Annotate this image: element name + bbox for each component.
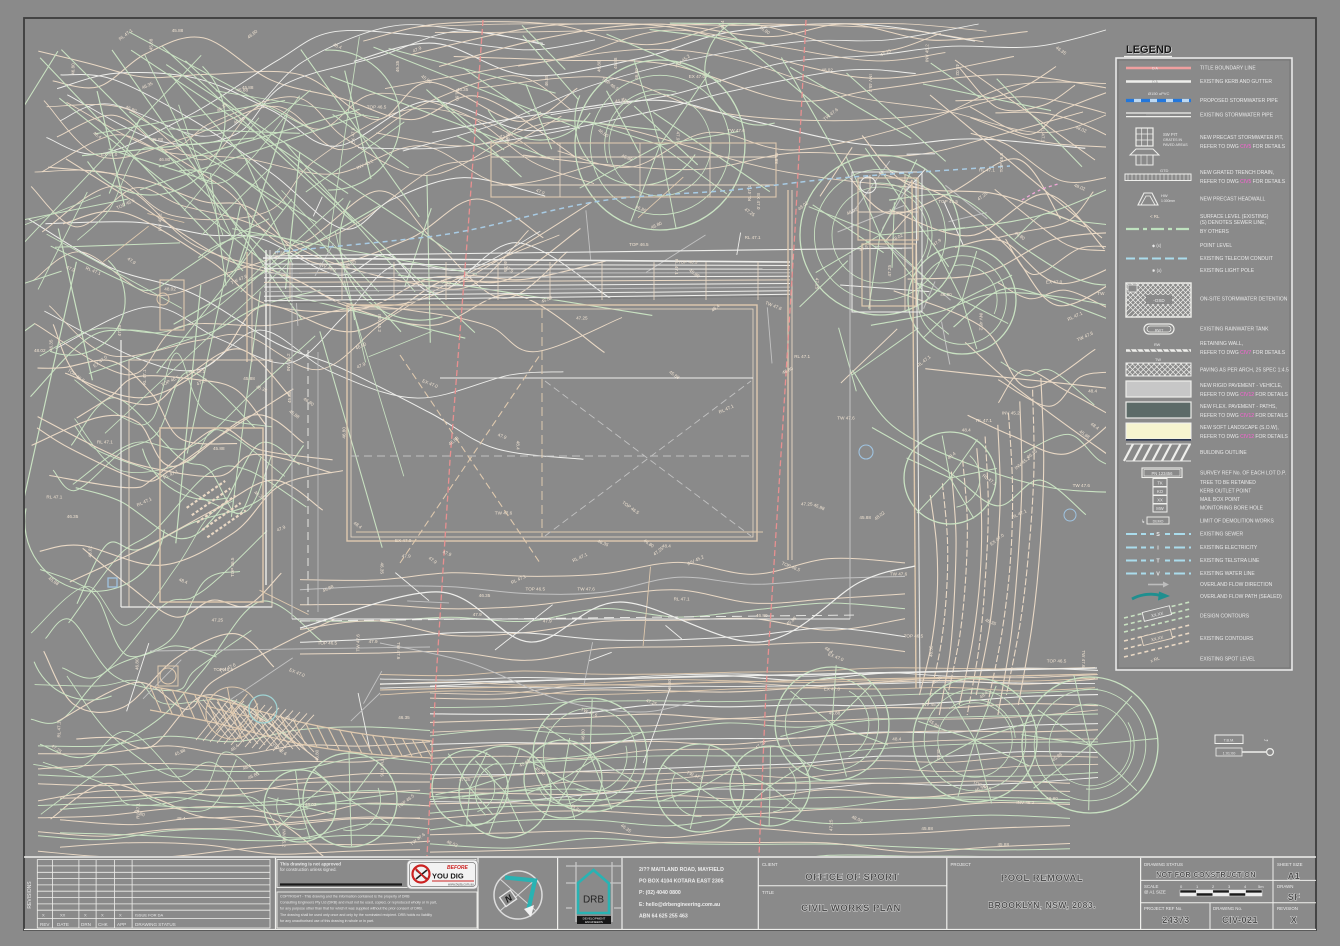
svg-text:D A: D A bbox=[1152, 67, 1158, 71]
svg-text:47.25: 47.25 bbox=[212, 617, 224, 622]
svg-text:for construction unless signed: for construction unless signed. bbox=[280, 867, 337, 872]
svg-text:PROPOSED STORMWATER PIPE: PROPOSED STORMWATER PIPE bbox=[1200, 98, 1279, 104]
svg-text:RWT: RWT bbox=[1155, 329, 1164, 333]
svg-text:↪: ↪ bbox=[1264, 738, 1268, 744]
svg-text:T.B.M.: T.B.M. bbox=[1224, 739, 1235, 743]
svg-text:RL 47.1: RL 47.1 bbox=[747, 185, 752, 201]
svg-text:TW 47.6: TW 47.6 bbox=[890, 572, 908, 577]
svg-text:46.80: 46.80 bbox=[134, 658, 139, 670]
svg-text:EXISTING TELECOM CONDUIT: EXISTING TELECOM CONDUIT bbox=[1200, 256, 1273, 262]
svg-text:47.25: 47.25 bbox=[117, 324, 122, 336]
svg-text:SHEET SIZE: SHEET SIZE bbox=[1277, 862, 1303, 867]
svg-text:PROJECT: PROJECT bbox=[951, 862, 972, 867]
svg-text:NEW GRATED TRENCH DRAIN,: NEW GRATED TRENCH DRAIN, bbox=[1200, 170, 1274, 176]
svg-text:48.02: 48.02 bbox=[34, 348, 46, 353]
svg-text:DRAWING STATUS: DRAWING STATUS bbox=[1144, 862, 1183, 867]
svg-text:46.35: 46.35 bbox=[380, 563, 385, 575]
svg-text:TITLE BOUNDARY LINE: TITLE BOUNDARY LINE bbox=[1200, 66, 1256, 72]
svg-text:EXISTING STORMWATER PIPE: EXISTING STORMWATER PIPE bbox=[1200, 112, 1274, 118]
svg-text:46.35: 46.35 bbox=[49, 339, 54, 351]
svg-text:47.9: 47.9 bbox=[369, 639, 378, 644]
svg-text:RL 47.1: RL 47.1 bbox=[56, 721, 61, 737]
svg-text:DATE: DATE bbox=[57, 922, 69, 927]
svg-text:45.88: 45.88 bbox=[152, 137, 164, 142]
svg-text:KERB OUTLET POINT: KERB OUTLET POINT bbox=[1200, 489, 1251, 495]
svg-text:45.88: 45.88 bbox=[287, 391, 292, 403]
svg-text:DRAWING STATUS: DRAWING STATUS bbox=[135, 922, 176, 927]
svg-text:DRB: DRB bbox=[583, 895, 604, 906]
svg-text:REVISION: REVISION bbox=[1277, 906, 1298, 911]
svg-text:EX 47.0: EX 47.0 bbox=[824, 687, 841, 692]
svg-text:48.4: 48.4 bbox=[892, 736, 901, 741]
svg-text:MONITORING BORE HOLE: MONITORING BORE HOLE bbox=[1200, 506, 1264, 512]
svg-text:KO: KO bbox=[1157, 489, 1164, 494]
svg-text:46.80: 46.80 bbox=[71, 63, 76, 75]
svg-text:TOP 46.5: TOP 46.5 bbox=[230, 557, 235, 577]
svg-text:SF: SF bbox=[1288, 892, 1301, 902]
svg-text:POINT LEVEL: POINT LEVEL bbox=[1200, 243, 1232, 249]
svg-text:REVISIONS: REVISIONS bbox=[27, 881, 33, 909]
svg-text:TREE TO BE RETAINED: TREE TO BE RETAINED bbox=[1200, 480, 1256, 486]
svg-text:CIVIL WORKS PLAN: CIVIL WORKS PLAN bbox=[801, 903, 901, 914]
svg-text:46.80: 46.80 bbox=[940, 292, 952, 297]
svg-text:E: hello@drbengineering.com.au: E: hello@drbengineering.com.au bbox=[639, 902, 720, 908]
svg-text:45.88: 45.88 bbox=[998, 842, 1010, 847]
svg-text:EXISTING WATER LINE: EXISTING WATER LINE bbox=[1200, 571, 1255, 577]
svg-text:BUILDING OUTLINE: BUILDING OUTLINE bbox=[1200, 450, 1247, 456]
svg-text:NOT FOR CONSTRUCTION: NOT FOR CONSTRUCTION bbox=[1156, 872, 1256, 879]
svg-text:INV 45.2: INV 45.2 bbox=[978, 313, 983, 331]
svg-text:NEW FLEX. PAVEMENT - PATHS,: NEW FLEX. PAVEMENT - PATHS, bbox=[1200, 404, 1277, 410]
svg-text:45.88: 45.88 bbox=[613, 57, 618, 69]
svg-text:REFER TO DWG CIV5 FOR DETAILS: REFER TO DWG CIV5 FOR DETAILS bbox=[1200, 144, 1286, 150]
svg-text:TOP 46.5: TOP 46.5 bbox=[678, 259, 698, 264]
svg-text:EX 47.0: EX 47.0 bbox=[351, 127, 356, 144]
svg-text:MAIL BOX POINT: MAIL BOX POINT bbox=[1200, 497, 1240, 503]
svg-text:YOU DIG: YOU DIG bbox=[432, 872, 464, 881]
svg-text:TOP 46.5: TOP 46.5 bbox=[1047, 658, 1067, 663]
svg-text:47.25: 47.25 bbox=[459, 777, 471, 782]
svg-text:REV: REV bbox=[40, 922, 50, 927]
svg-text:REFER TO DWG CIV12 FOR DETAILS: REFER TO DWG CIV12 FOR DETAILS bbox=[1200, 434, 1288, 440]
svg-text:EX 47.0: EX 47.0 bbox=[395, 538, 412, 543]
svg-text:DRN: DRN bbox=[81, 922, 91, 927]
svg-text:D A: D A bbox=[1152, 80, 1158, 84]
svg-text:(S) DENOTES SEWER LINE,: (S) DENOTES SEWER LINE, bbox=[1200, 220, 1266, 226]
svg-text:TOP 46.5: TOP 46.5 bbox=[938, 199, 958, 204]
svg-text:NEW SOFT LANDSCAPE (S.O.W),: NEW SOFT LANDSCAPE (S.O.W), bbox=[1200, 425, 1279, 431]
svg-text:48.4: 48.4 bbox=[662, 544, 671, 549]
svg-text:TITLE: TITLE bbox=[762, 890, 774, 895]
svg-text:46.80: 46.80 bbox=[455, 89, 460, 101]
svg-text:1:300mm: 1:300mm bbox=[1161, 199, 1175, 203]
svg-text:TK: TK bbox=[1157, 481, 1163, 486]
svg-text:X: X bbox=[84, 913, 87, 918]
svg-text:DRAWING No.: DRAWING No. bbox=[1213, 906, 1242, 911]
svg-text:RL 47.1: RL 47.1 bbox=[745, 235, 761, 240]
svg-text:A1: A1 bbox=[1288, 871, 1301, 881]
svg-text:REFER TO DWG CIV7 FOR DETAILS: REFER TO DWG CIV7 FOR DETAILS bbox=[1200, 350, 1286, 356]
svg-text:CLIENT: CLIENT bbox=[762, 862, 778, 867]
svg-text:BROOKLYN, NSW, 2083.: BROOKLYN, NSW, 2083. bbox=[988, 900, 1096, 910]
svg-text:S: S bbox=[1156, 532, 1160, 538]
svg-text:48.4: 48.4 bbox=[720, 20, 725, 29]
svg-text:46.80: 46.80 bbox=[580, 729, 585, 741]
svg-text:EXISTING KERB AND GUTTER: EXISTING KERB AND GUTTER bbox=[1200, 79, 1272, 85]
svg-text:TW 47.6: TW 47.6 bbox=[1073, 483, 1091, 488]
svg-text:LEGEND: LEGEND bbox=[1126, 44, 1172, 56]
svg-text:Ø150 uPVC: Ø150 uPVC bbox=[1148, 91, 1169, 96]
svg-text:PAVING AS PER ARCH, 25 SPEC 1:: PAVING AS PER ARCH, 25 SPEC 1:4.5 bbox=[1200, 368, 1289, 374]
svg-text:48.02: 48.02 bbox=[821, 67, 833, 72]
svg-text:BY OTHERS: BY OTHERS bbox=[1200, 229, 1229, 235]
svg-text:46.80: 46.80 bbox=[667, 678, 672, 690]
svg-text:47.25: 47.25 bbox=[887, 265, 892, 277]
svg-text:TW 47.6: TW 47.6 bbox=[396, 642, 401, 660]
svg-text:24373: 24373 bbox=[1162, 915, 1190, 925]
svg-text:↳: ↳ bbox=[1141, 519, 1145, 525]
svg-text:GTD: GTD bbox=[1160, 168, 1169, 173]
svg-text:45.88: 45.88 bbox=[237, 87, 249, 92]
svg-text:ISSUE FOR DA: ISSUE FOR DA bbox=[135, 913, 164, 918]
svg-text:RL 47.1: RL 47.1 bbox=[97, 440, 113, 445]
svg-text:CHK: CHK bbox=[98, 922, 109, 927]
svg-text:45.88: 45.88 bbox=[859, 515, 871, 520]
svg-text:TW 47.6: TW 47.6 bbox=[1081, 650, 1086, 668]
svg-text:TW: TW bbox=[1155, 358, 1161, 362]
svg-text:RL 47.1: RL 47.1 bbox=[976, 418, 992, 423]
svg-text:TOP 46.5: TOP 46.5 bbox=[999, 152, 1004, 172]
svg-text:REFER TO DWG CIV12 FOR DETAILS: REFER TO DWG CIV12 FOR DETAILS bbox=[1200, 392, 1288, 398]
svg-text:This drawing is not approved: This drawing is not approved bbox=[280, 862, 341, 867]
svg-text:EXISTING SPOT LEVEL: EXISTING SPOT LEVEL bbox=[1200, 657, 1255, 663]
svg-text:RETAINING WALL,: RETAINING WALL, bbox=[1200, 341, 1243, 347]
svg-text:46.80: 46.80 bbox=[342, 427, 347, 439]
svg-text:48.02: 48.02 bbox=[936, 749, 941, 761]
svg-text:TW 47.6: TW 47.6 bbox=[577, 587, 595, 592]
svg-text:47.9: 47.9 bbox=[473, 612, 482, 617]
svg-text:COPYRIGHT - This drawing and t: COPYRIGHT - This drawing and the informa… bbox=[280, 895, 410, 899]
svg-text:XX: XX bbox=[60, 913, 66, 918]
svg-text:The drawing shall be used only: The drawing shall be used only once and … bbox=[280, 913, 432, 917]
svg-text:X: X bbox=[42, 913, 45, 918]
svg-text:48.4: 48.4 bbox=[962, 428, 971, 433]
svg-text:TOP 46.5: TOP 46.5 bbox=[904, 633, 924, 638]
svg-text:47.25: 47.25 bbox=[801, 502, 813, 507]
svg-text:X: X bbox=[101, 913, 104, 918]
svg-text:48.4: 48.4 bbox=[177, 816, 186, 821]
svg-text:GRATES IN: GRATES IN bbox=[1163, 138, 1183, 142]
svg-text:for any unauthorised use of th: for any unauthorised use of this drawing… bbox=[280, 919, 374, 923]
svg-text:EXISTING ELECTRICITY: EXISTING ELECTRICITY bbox=[1200, 545, 1258, 551]
svg-text:47.9: 47.9 bbox=[543, 618, 552, 623]
svg-text:RW: RW bbox=[1154, 343, 1161, 347]
svg-text:INV 45.2: INV 45.2 bbox=[286, 353, 291, 371]
svg-text:X: X bbox=[119, 913, 122, 918]
svg-text:INV 45.2: INV 45.2 bbox=[377, 314, 382, 332]
svg-text:INV 45.2: INV 45.2 bbox=[1016, 800, 1034, 805]
svg-text:SW PIT: SW PIT bbox=[1163, 132, 1178, 137]
svg-text:CIV-021: CIV-021 bbox=[1222, 915, 1258, 925]
svg-text:46.80: 46.80 bbox=[756, 613, 768, 618]
svg-text:ENGINEERS: ENGINEERS bbox=[585, 920, 603, 924]
svg-text:REFER TO DWG CIV5 FOR DETAILS: REFER TO DWG CIV5 FOR DETAILS bbox=[1200, 179, 1286, 185]
svg-text:INV 45.2: INV 45.2 bbox=[281, 829, 286, 847]
svg-text:REFER TO DWG CIV12 FOR DETAILS: REFER TO DWG CIV12 FOR DETAILS bbox=[1200, 413, 1288, 419]
svg-text:48.4: 48.4 bbox=[1088, 389, 1097, 394]
svg-text:HW: HW bbox=[1161, 193, 1168, 198]
svg-text:TOP 46.5: TOP 46.5 bbox=[526, 587, 546, 592]
svg-text:48.02: 48.02 bbox=[87, 546, 92, 558]
svg-text:RL 47.1: RL 47.1 bbox=[46, 495, 62, 500]
svg-text:47.25: 47.25 bbox=[274, 251, 286, 256]
svg-text:46.80: 46.80 bbox=[597, 60, 602, 72]
svg-text:LIMIT OF DEMOLITION WORKS: LIMIT OF DEMOLITION WORKS bbox=[1200, 519, 1274, 525]
svg-text:@ A1 SIZE: @ A1 SIZE bbox=[1144, 890, 1166, 895]
svg-text:47.9: 47.9 bbox=[402, 553, 411, 558]
svg-text:TW 47.6: TW 47.6 bbox=[837, 416, 855, 421]
svg-text:OVERLAND FLOW PATH (SEALED): OVERLAND FLOW PATH (SEALED) bbox=[1200, 594, 1282, 600]
svg-text:2/?? MAITLAND ROAD, MAYFIELD: 2/?? MAITLAND ROAD, MAYFIELD bbox=[639, 867, 724, 873]
svg-text:EXISTING LIGHT POLE: EXISTING LIGHT POLE bbox=[1200, 268, 1255, 274]
svg-text:EXISTING CONTOURS: EXISTING CONTOURS bbox=[1200, 636, 1254, 642]
svg-text:SCALE: SCALE bbox=[1144, 884, 1158, 889]
svg-text:✱ (x): ✱ (x) bbox=[1152, 268, 1162, 273]
svg-text:46.80: 46.80 bbox=[314, 749, 319, 761]
svg-text:45.88: 45.88 bbox=[243, 376, 255, 381]
svg-text:45.88: 45.88 bbox=[921, 826, 933, 831]
svg-text:45.88: 45.88 bbox=[213, 446, 225, 451]
svg-text:-OSD: -OSD bbox=[1153, 298, 1165, 303]
svg-text:RL 47.1: RL 47.1 bbox=[674, 596, 690, 601]
svg-text:RL 47.1: RL 47.1 bbox=[1040, 126, 1045, 142]
svg-text:RL 47.1: RL 47.1 bbox=[674, 259, 679, 275]
svg-text:TW 47.6: TW 47.6 bbox=[355, 634, 360, 652]
svg-text:◆ (x): ◆ (x) bbox=[1152, 243, 1162, 248]
svg-text:DESIGN CONTOURS: DESIGN CONTOURS bbox=[1200, 614, 1250, 620]
svg-text:RL 47.1: RL 47.1 bbox=[794, 354, 810, 359]
svg-text:46.80: 46.80 bbox=[159, 157, 171, 162]
svg-text:RL 47.1: RL 47.1 bbox=[189, 369, 205, 374]
svg-text:TOP 46.5: TOP 46.5 bbox=[367, 105, 387, 110]
svg-text:46.35: 46.35 bbox=[479, 593, 491, 598]
svg-text:NEW RIGID PAVEMENT - VEHICLE,: NEW RIGID PAVEMENT - VEHICLE, bbox=[1200, 383, 1282, 389]
svg-text:47.25: 47.25 bbox=[814, 278, 819, 290]
svg-text:PO BOX 4104 KOTARA EAST 2305: PO BOX 4104 KOTARA EAST 2305 bbox=[639, 879, 724, 885]
svg-text:for any purpose other than tha: for any purpose other than that for whic… bbox=[280, 907, 423, 911]
svg-text:PROJECT REF No.: PROJECT REF No. bbox=[1144, 906, 1182, 911]
svg-text:INV 45.2: INV 45.2 bbox=[925, 44, 930, 62]
svg-text:TW 47.6: TW 47.6 bbox=[380, 759, 385, 777]
svg-text:47.9: 47.9 bbox=[676, 132, 681, 141]
svg-text:POOL REMOVAL: POOL REMOVAL bbox=[1001, 873, 1083, 884]
svg-text:PN 123456: PN 123456 bbox=[1152, 471, 1174, 476]
svg-text:APP: APP bbox=[117, 922, 126, 927]
svg-text:XX: XX bbox=[1157, 498, 1163, 503]
svg-text:DEMO: DEMO bbox=[1153, 520, 1164, 524]
svg-text:48.02: 48.02 bbox=[305, 802, 317, 807]
svg-text:TW 47.6: TW 47.6 bbox=[727, 128, 745, 133]
svg-text:INV 45.2: INV 45.2 bbox=[1002, 411, 1020, 416]
svg-text:46.35: 46.35 bbox=[398, 715, 410, 720]
svg-text:45.88: 45.88 bbox=[172, 28, 184, 33]
svg-text:5m: 5m bbox=[1258, 884, 1264, 889]
svg-text:46.80: 46.80 bbox=[634, 68, 639, 80]
svg-text:OFFICE OF SPORT: OFFICE OF SPORT bbox=[805, 872, 899, 883]
svg-text:INV 45.2: INV 45.2 bbox=[158, 213, 163, 231]
svg-text:46.80: 46.80 bbox=[1046, 796, 1058, 801]
svg-text:DRAWN: DRAWN bbox=[1277, 884, 1293, 889]
svg-text:EX 47.0: EX 47.0 bbox=[1046, 279, 1063, 284]
svg-text:EXISTING RAINWATER TANK: EXISTING RAINWATER TANK bbox=[1200, 327, 1269, 333]
svg-text:46.35: 46.35 bbox=[544, 74, 549, 86]
svg-text:P: (02) 4040 0800: P: (02) 4040 0800 bbox=[639, 890, 681, 896]
svg-text:MW: MW bbox=[1156, 506, 1163, 511]
svg-text:EXISTING TELSTRA LINE: EXISTING TELSTRA LINE bbox=[1200, 558, 1260, 564]
svg-text:46.35: 46.35 bbox=[395, 60, 400, 72]
svg-text:45.88: 45.88 bbox=[774, 152, 779, 164]
svg-text:EXISTING SEWER: EXISTING SEWER bbox=[1200, 532, 1243, 538]
svg-text:SURVEY REF No. OF EACH LOT D.P: SURVEY REF No. OF EACH LOT D.P. bbox=[1200, 471, 1286, 477]
svg-text:RL 47.1: RL 47.1 bbox=[135, 802, 140, 818]
svg-text:ON-SITE STORMWATER DETENTION: ON-SITE STORMWATER DETENTION bbox=[1200, 297, 1288, 303]
svg-text:EX 47.0: EX 47.0 bbox=[101, 152, 118, 157]
svg-text:< RL: < RL bbox=[1150, 214, 1160, 219]
svg-text:X: X bbox=[1291, 915, 1298, 925]
svg-text:OVERLAND FLOW DIRECTION: OVERLAND FLOW DIRECTION bbox=[1200, 582, 1273, 588]
svg-text:RL 47.1: RL 47.1 bbox=[979, 167, 995, 172]
svg-text:TOP 46.5: TOP 46.5 bbox=[629, 242, 649, 247]
svg-text:NEW PRECAST HEADWALL: NEW PRECAST HEADWALL bbox=[1200, 197, 1266, 203]
svg-text:TW 47.6: TW 47.6 bbox=[495, 511, 513, 516]
svg-text:INV 45.2: INV 45.2 bbox=[922, 702, 940, 707]
svg-text:www.byda.com.au: www.byda.com.au bbox=[448, 883, 474, 887]
svg-text:48.02: 48.02 bbox=[955, 64, 960, 76]
svg-text:TOP 46.5: TOP 46.5 bbox=[318, 640, 338, 645]
svg-text:46.35: 46.35 bbox=[67, 514, 79, 519]
svg-text:PAVED AREAS: PAVED AREAS bbox=[1163, 143, 1188, 147]
svg-text:Consulting Engineers Pty Ltd (: Consulting Engineers Pty Ltd (DRB) and m… bbox=[280, 901, 437, 905]
svg-text:BEFORE: BEFORE bbox=[447, 865, 469, 871]
svg-text:INV 45.2: INV 45.2 bbox=[868, 74, 873, 92]
svg-text:47.25: 47.25 bbox=[576, 316, 588, 321]
svg-text:47.25: 47.25 bbox=[829, 819, 834, 831]
svg-text:45.88: 45.88 bbox=[829, 711, 841, 716]
svg-text:ABN 64 625 255 463: ABN 64 625 255 463 bbox=[639, 913, 688, 919]
svg-text:48.02: 48.02 bbox=[164, 286, 176, 291]
svg-text:45.88: 45.88 bbox=[149, 38, 154, 50]
svg-text:46.35: 46.35 bbox=[929, 645, 934, 657]
svg-text:1:01:00: 1:01:00 bbox=[1223, 751, 1236, 755]
svg-text:V: V bbox=[1156, 572, 1160, 578]
svg-text:EX 47.0: EX 47.0 bbox=[689, 74, 706, 79]
svg-text:NEW PRECAST STORMWATER PIT,: NEW PRECAST STORMWATER PIT, bbox=[1200, 135, 1283, 141]
svg-text:48.4: 48.4 bbox=[516, 441, 521, 450]
svg-text:RL 47.1: RL 47.1 bbox=[142, 369, 147, 385]
svg-text:EX 47.0: EX 47.0 bbox=[756, 193, 761, 210]
